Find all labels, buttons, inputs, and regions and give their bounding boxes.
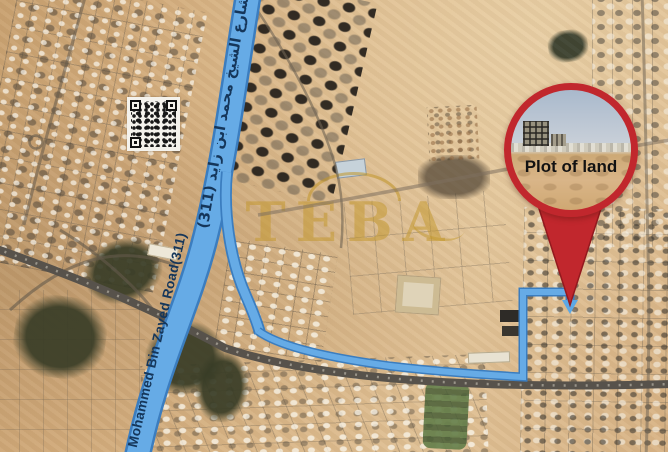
- pin-tail-layer: [0, 0, 668, 452]
- satellite-map[interactable]: شارع الشيخ محمد ابن زايد (311) Mohammed …: [0, 0, 668, 452]
- pin-photo-building: [551, 134, 567, 146]
- pin-photo-building: [523, 121, 549, 146]
- pin-label: Plot of land: [511, 157, 631, 177]
- location-pin[interactable]: Plot of land: [504, 83, 638, 217]
